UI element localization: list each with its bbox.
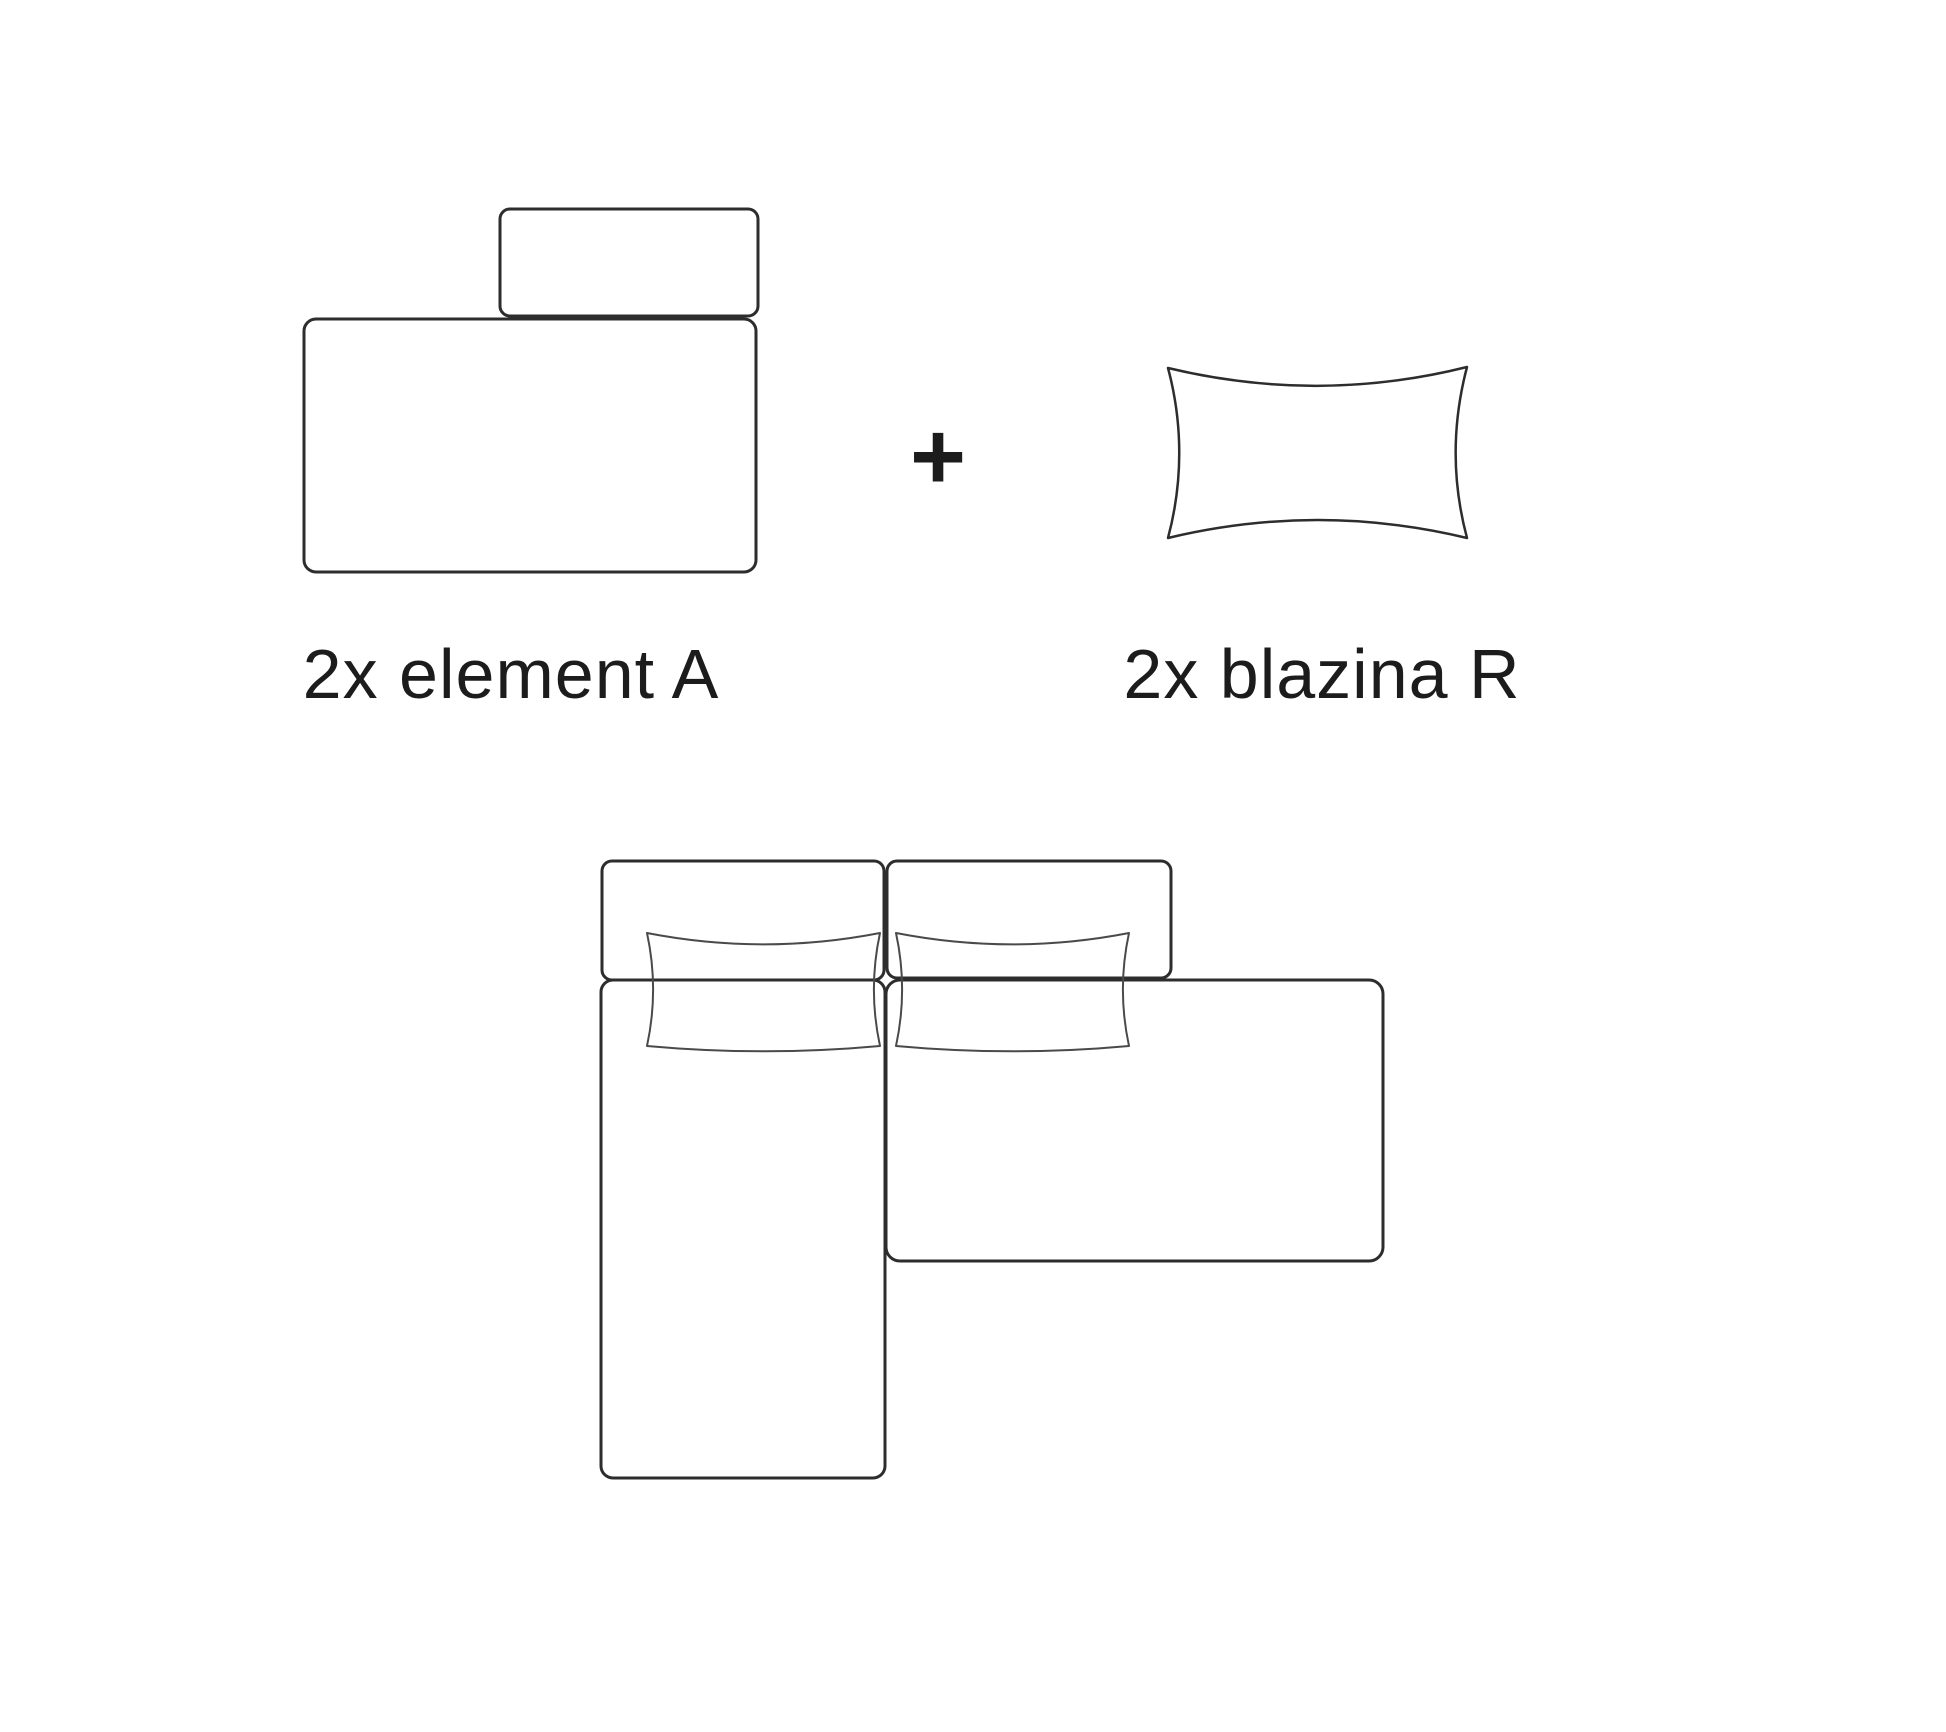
blazina-r-label: 2x blazina R: [1123, 635, 1520, 713]
plus-sign: +: [910, 403, 966, 510]
sofa-configuration-diagram: + 2x element A 2x blazina R: [0, 0, 1946, 1732]
assembly-backrest-right: [887, 861, 1171, 978]
element-a-backrest: [500, 209, 758, 316]
assembly-seat-right: [886, 980, 1383, 1261]
element-a-label: 2x element A: [303, 635, 720, 713]
element-a-seat: [304, 319, 756, 572]
blazina-r-diagram: [1168, 367, 1467, 538]
assembly-seat-left: [601, 980, 885, 1478]
cushion-outline-icon: [1168, 367, 1467, 538]
assembly-diagram: [601, 861, 1383, 1478]
assembly-backrest-left: [602, 861, 884, 980]
element-a-diagram: [304, 209, 758, 572]
